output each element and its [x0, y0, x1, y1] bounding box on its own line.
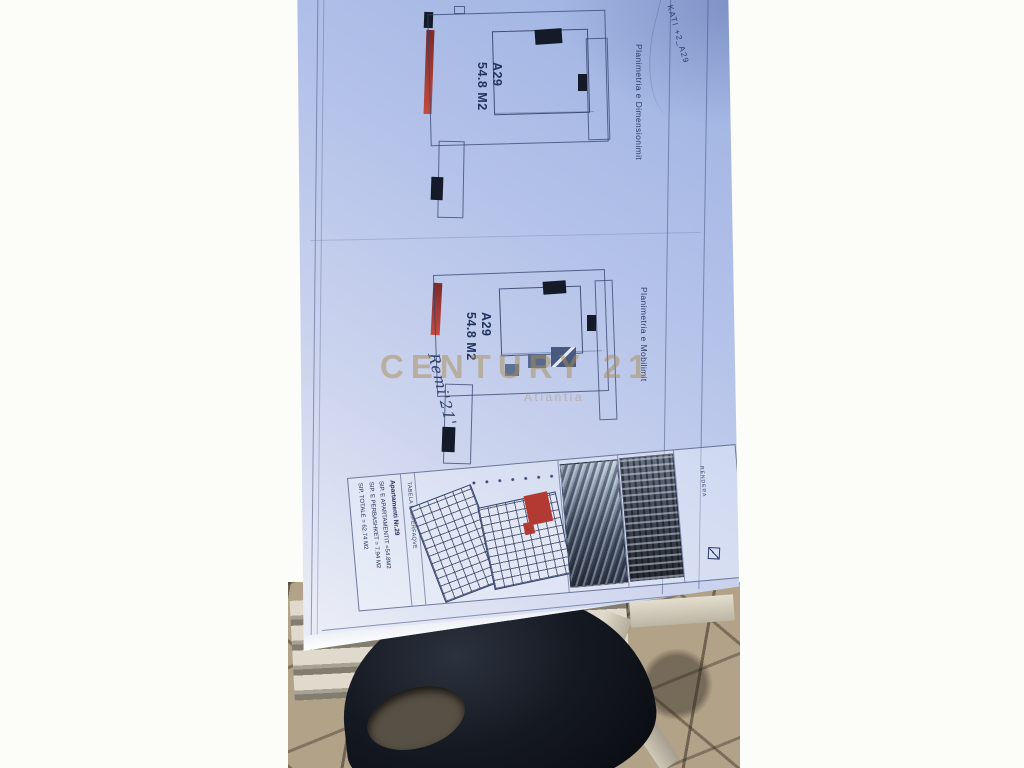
plan2-wall-block [543, 280, 567, 295]
title-block-strip: Apartamenti Nr.29 SIP. E APARTAMENTIT =5… [347, 444, 747, 611]
plan1-wall-block [578, 74, 587, 91]
plan2-wall-block [442, 427, 456, 452]
watermark-office: Atlantia [524, 390, 584, 404]
building-photo-facade [619, 453, 684, 581]
plan1-wall-block [431, 177, 444, 200]
photo-of-floorplan-sheet: A29 54.8 M2 A29 54.8 M2 Remi'21' Planime… [0, 0, 1024, 768]
paper-crease [310, 232, 700, 241]
plan1-door-tick [454, 6, 465, 14]
plan1-wall-block [535, 28, 563, 45]
frame-line [317, 0, 325, 636]
watermark-brand: CENTURY 21 [380, 348, 654, 386]
plan2-room [499, 286, 583, 357]
key-plan-dots [472, 474, 554, 486]
area-table: Apartamenti Nr.29 SIP. E APARTAMENTIT =5… [354, 480, 406, 605]
floorplan-sheet: A29 54.8 M2 A29 54.8 M2 Remi'21' Planime… [292, 0, 740, 656]
plan1-unit-number: A29 [489, 62, 504, 134]
plan2-wall-block [587, 315, 596, 331]
north-arrow-icon [708, 547, 721, 560]
key-plan [415, 462, 568, 603]
plan1-wing [586, 38, 611, 141]
building-photo-exterior [560, 459, 629, 588]
renders-label: RENDERA [698, 466, 709, 526]
plan1-unit-label: A29 54.8 M2 [474, 62, 504, 134]
plan1-title: Planimetria e Dimensionimit [634, 44, 644, 160]
plan1-unit-area: 54.8 M2 [474, 62, 489, 134]
